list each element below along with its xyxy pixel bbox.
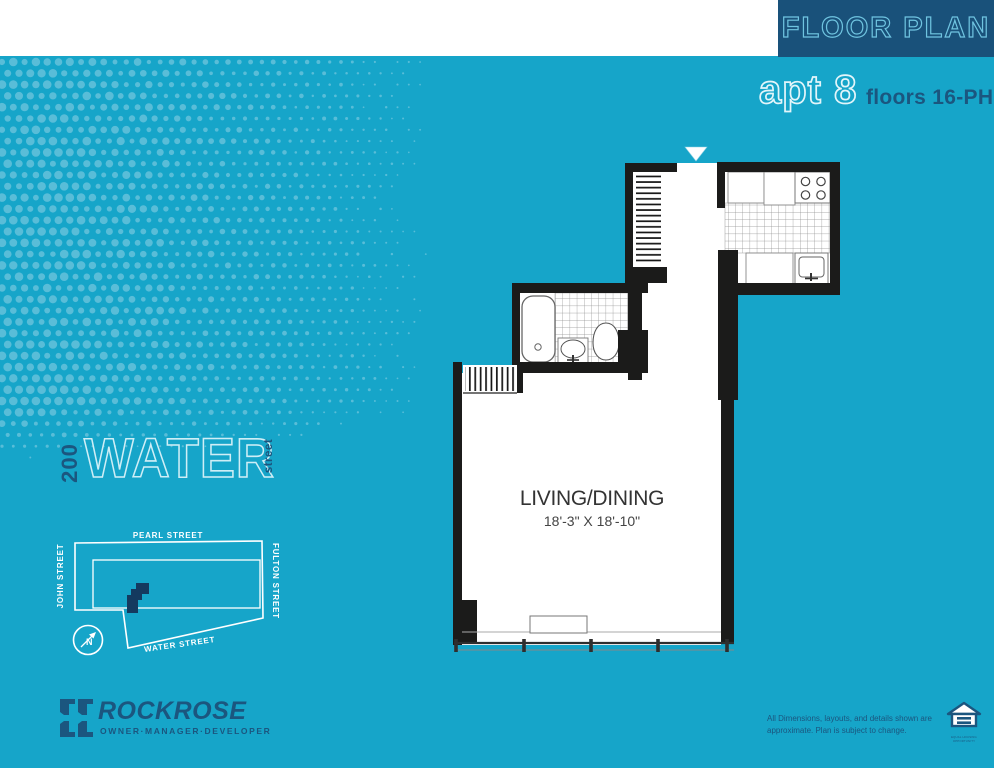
- toilet-icon: [593, 323, 619, 360]
- developer-tagline: OWNER·MANAGER·DEVELOPER: [100, 726, 271, 736]
- entry-closet-shelves: [636, 173, 661, 263]
- column: [456, 600, 477, 643]
- compass-icon: N: [74, 626, 103, 655]
- bathtub-icon: [522, 296, 555, 362]
- building-number: 200: [57, 443, 83, 483]
- location-map: N PEARL STREET JOHN STREET FULTON STREET…: [52, 524, 288, 664]
- floors-range: floors 16-PH: [866, 86, 993, 110]
- kitchen-tile-floor: [725, 203, 830, 253]
- entry-door-arrow-icon: [685, 147, 707, 161]
- developer-name: ROCKROSE: [98, 697, 246, 726]
- bathroom-sink-icon: [558, 338, 588, 364]
- map-block-outline: [75, 541, 263, 648]
- kitchen-sink-icon: [795, 253, 828, 284]
- street-label-pearl: PEARL STREET: [133, 531, 203, 540]
- floor-plan-flyer: FLOOR PLAN apt 8 floors 16-PH: [0, 0, 994, 768]
- building-name: WATER: [84, 425, 275, 490]
- developer-logo: ROCKROSE OWNER·MANAGER·DEVELOPER: [60, 697, 280, 743]
- stove-icon: [795, 172, 830, 203]
- equal-housing-house-icon: [944, 700, 984, 730]
- floor-plan-drawing: LIVING/DINING 18'-3" X 18'-10": [440, 140, 840, 660]
- apartment-number: apt 8: [759, 68, 857, 113]
- street-label-fulton: FULTON STREET: [271, 543, 280, 619]
- room-dimensions: 18'-3" X 18'-10": [544, 513, 640, 529]
- header-white-strip: [0, 0, 778, 56]
- disclaimer-line2: approximate. Plan is subject to change.: [767, 725, 947, 737]
- room-label: LIVING/DINING: [520, 487, 664, 510]
- page-title: FLOOR PLAN: [782, 12, 991, 45]
- equal-housing-logo: EQUAL HOUSING OPPORTUNITY: [944, 700, 984, 742]
- halftone-dot-pattern: [0, 56, 470, 470]
- linen-closet-shelves: [463, 367, 517, 393]
- equal-housing-caption: EQUAL HOUSING OPPORTUNITY: [944, 735, 984, 743]
- building-name-suffix: street: [263, 439, 275, 473]
- map-inner-block: [93, 560, 260, 608]
- rockrose-mark-icon: [60, 699, 94, 739]
- disclaimer-line1: All Dimensions, layouts, and details sho…: [767, 713, 947, 725]
- compass-n: N: [86, 637, 93, 647]
- disclaimer-text: All Dimensions, layouts, and details sho…: [767, 713, 947, 736]
- floor-plan-title-box: FLOOR PLAN: [778, 0, 994, 57]
- street-label-water: WATER STREET: [144, 635, 216, 654]
- street-label-john: JOHN STREET: [56, 544, 65, 609]
- ptac-unit: [530, 616, 587, 633]
